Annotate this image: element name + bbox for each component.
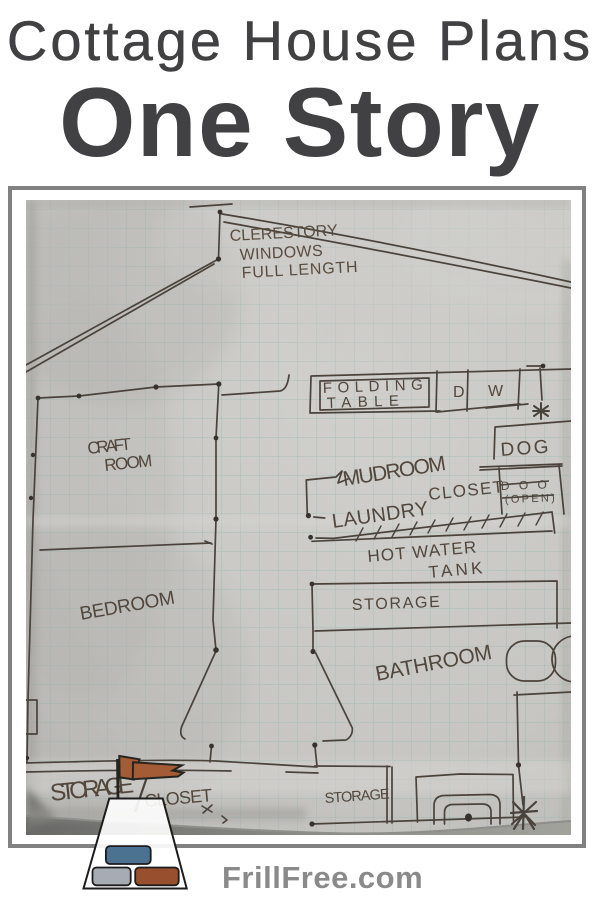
svg-text:STORAGE: STORAGE [352, 594, 441, 614]
svg-text:DOO: DOO [501, 477, 547, 493]
svg-text:DOG: DOG [500, 437, 549, 461]
svg-text:D: D [453, 384, 465, 401]
svg-text:W: W [488, 383, 504, 400]
